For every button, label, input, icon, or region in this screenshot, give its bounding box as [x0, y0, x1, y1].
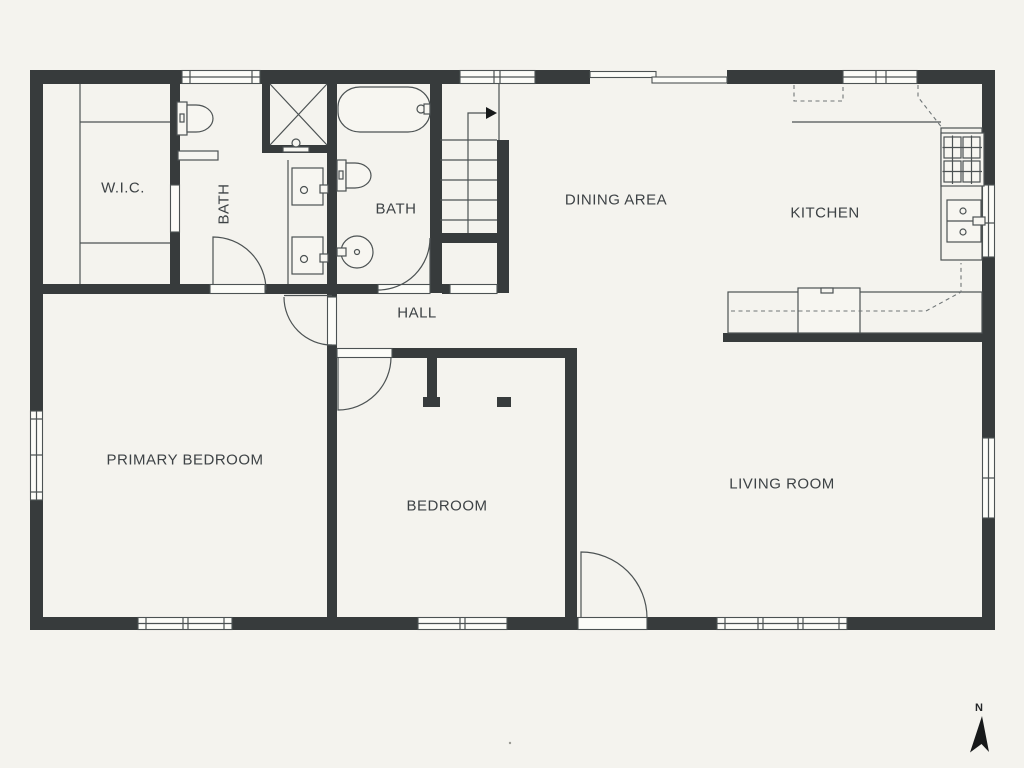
- sliding-door: [590, 72, 727, 84]
- wall-segment: [917, 70, 995, 84]
- floor-plan: W.I.C. BATH BATH HALL DINING AREA KITCHE…: [0, 0, 1024, 768]
- north-arrow-icon: [970, 716, 989, 753]
- wall-segment: [982, 518, 995, 617]
- wall-segment: [723, 333, 982, 342]
- stair-up-arrow-icon: [486, 107, 497, 119]
- stair-treads: [440, 84, 499, 220]
- cased-opening: [171, 185, 180, 232]
- floor-plan-drawing: [0, 0, 1024, 768]
- wall-segment: [507, 617, 578, 630]
- window: [983, 438, 995, 518]
- window: [418, 618, 507, 630]
- wall-segment: [262, 84, 270, 145]
- wall-segment: [30, 617, 138, 630]
- wall-segment: [423, 397, 440, 407]
- door-arc-bath-1: [213, 237, 266, 290]
- door-threshold: [328, 297, 337, 345]
- wall-segment: [30, 500, 43, 630]
- cased-opening: [450, 285, 497, 294]
- wall-segment: [265, 284, 327, 294]
- wall-segment: [727, 70, 843, 84]
- door-threshold: [210, 285, 265, 294]
- door-arc-bath-2: [378, 238, 430, 290]
- wall-segment: [392, 348, 577, 358]
- wall-segment: [30, 70, 182, 84]
- interior-walls: [30, 84, 982, 617]
- toilet-icon: [337, 160, 371, 191]
- room-label-primary-bedroom: PRIMARY BEDROOM: [107, 452, 264, 469]
- kitchen-sink-icon: [947, 200, 985, 242]
- window: [717, 618, 847, 630]
- door-arc-front-entry: [581, 552, 647, 618]
- wall-segment: [647, 617, 717, 630]
- wall-segment: [337, 284, 378, 294]
- front-door-threshold: [578, 618, 647, 630]
- door-threshold: [337, 349, 392, 358]
- wall-segment: [430, 84, 442, 293]
- staircase: [440, 84, 499, 233]
- upper-cabinets-dashed: [731, 85, 961, 311]
- room-label-bath-1: BATH: [216, 184, 233, 225]
- wall-segment: [30, 84, 43, 411]
- wall-segment: [565, 348, 577, 617]
- room-label-dining-area: DINING AREA: [565, 192, 667, 209]
- room-label-living-room: LIVING ROOM: [729, 476, 835, 493]
- room-label-bath-2: BATH: [376, 201, 417, 218]
- doors: [213, 237, 647, 618]
- wall-segment: [982, 257, 995, 438]
- window: [182, 71, 260, 84]
- room-label-bedroom: BEDROOM: [406, 498, 487, 515]
- room-label-kitchen: KITCHEN: [790, 205, 859, 222]
- room-label-hall: HALL: [397, 305, 437, 322]
- wall-segment: [170, 232, 180, 284]
- stair-direction-line: [468, 113, 487, 233]
- door-arc-bedroom: [338, 357, 391, 410]
- window: [31, 411, 44, 500]
- wall-segment: [535, 70, 590, 84]
- window: [138, 618, 232, 630]
- wall-segment: [232, 617, 418, 630]
- double-vanity-icon: [288, 160, 328, 284]
- bath-2-fixtures: [337, 87, 430, 268]
- window: [460, 71, 535, 84]
- toilet-icon: [177, 102, 213, 135]
- compass-north-label: N: [975, 702, 983, 714]
- wall-segment: [442, 284, 450, 294]
- wall-segment: [497, 140, 509, 293]
- wall-segment: [30, 284, 210, 294]
- wall-segment: [327, 345, 337, 617]
- bathtub-icon: [338, 87, 430, 132]
- wall-segment: [260, 70, 460, 84]
- wall-segment: [432, 233, 507, 243]
- round-sink-icon: [337, 236, 373, 268]
- window: [843, 71, 917, 84]
- room-label-wic: W.I.C.: [101, 180, 145, 197]
- stove-cooktop-icon: [941, 133, 984, 186]
- wall-segment: [847, 617, 995, 630]
- speck: [509, 742, 511, 744]
- shelf: [178, 151, 218, 160]
- door-arc-primary-bedroom: [284, 296, 332, 346]
- wall-segment: [497, 397, 511, 407]
- shower-icon: [270, 84, 327, 152]
